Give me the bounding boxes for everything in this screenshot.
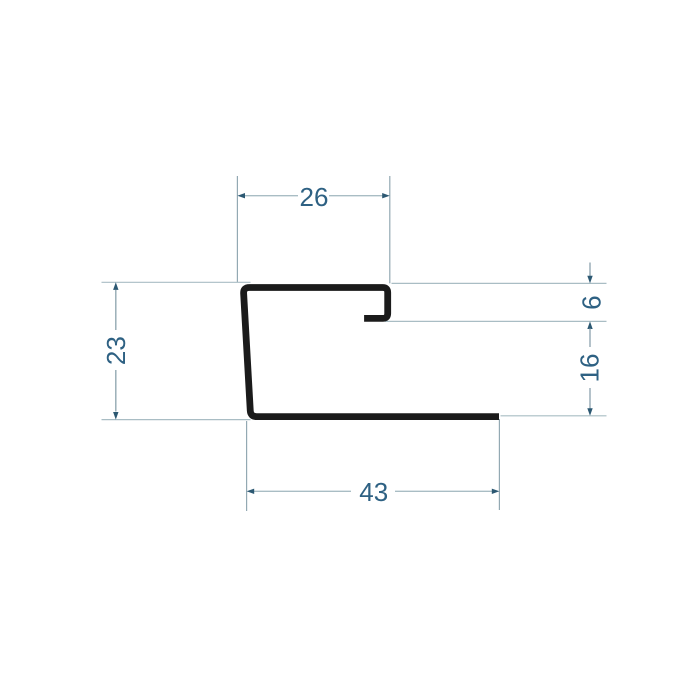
svg-text:16: 16	[574, 354, 604, 383]
svg-text:26: 26	[300, 182, 329, 212]
svg-text:6: 6	[577, 295, 607, 309]
svg-text:23: 23	[101, 336, 131, 365]
svg-text:43: 43	[359, 477, 388, 507]
